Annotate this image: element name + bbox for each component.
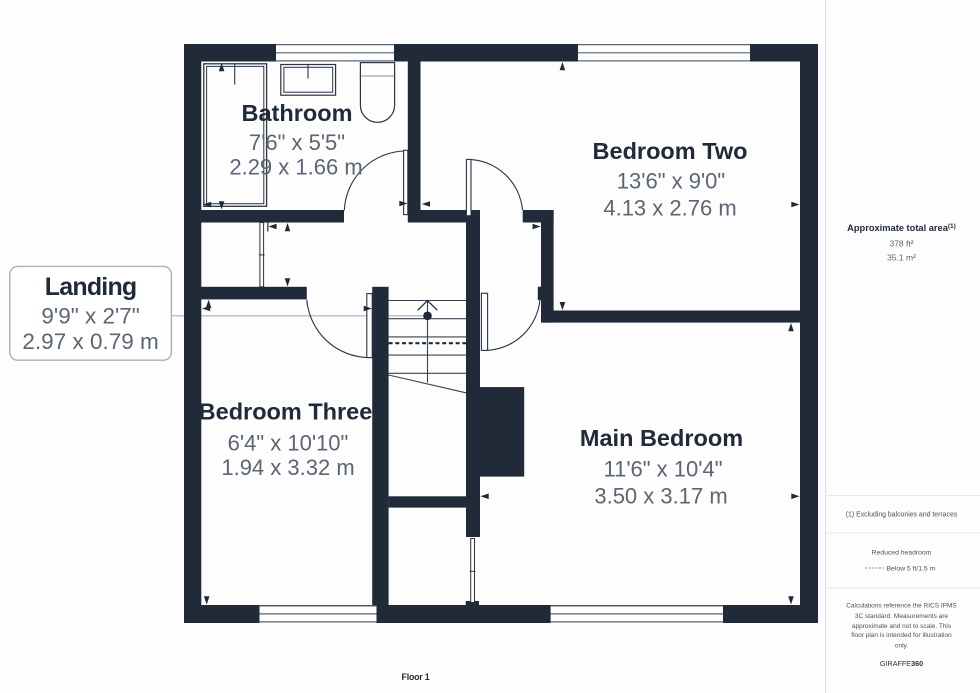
svg-text:Bathroom: Bathroom — [242, 100, 353, 126]
svg-text:Below 5 ft/1.5 m: Below 5 ft/1.5 m — [887, 565, 936, 572]
svg-text:Landing: Landing — [45, 273, 137, 301]
svg-text:13'6" x 9'0": 13'6" x 9'0" — [617, 169, 725, 194]
svg-text:GIRAFFE360: GIRAFFE360 — [880, 659, 923, 668]
svg-text:6'4" x 10'10": 6'4" x 10'10" — [228, 431, 349, 456]
svg-text:Bedroom Three: Bedroom Three — [199, 399, 373, 425]
svg-text:only.: only. — [895, 642, 908, 649]
svg-text:35.1 m²: 35.1 m² — [887, 253, 916, 263]
svg-text:9'9" x 2'7": 9'9" x 2'7" — [41, 304, 139, 329]
svg-text:Reduced headroom: Reduced headroom — [872, 549, 932, 556]
svg-text:1.94 x 3.32 m: 1.94 x 3.32 m — [221, 455, 354, 480]
svg-text:approximate and not to scale.: approximate and not to scale. This — [852, 623, 952, 630]
svg-text:Floor 1: Floor 1 — [402, 672, 430, 682]
svg-text:Approximate total area(1): Approximate total area(1) — [847, 223, 956, 233]
svg-text:3.50 x 3.17 m: 3.50 x 3.17 m — [594, 484, 727, 509]
svg-text:floor plan is intended for ill: floor plan is intended for illustration — [851, 632, 952, 639]
svg-text:4.13 x 2.76 m: 4.13 x 2.76 m — [603, 196, 736, 221]
svg-text:(1) Excluding balconies and te: (1) Excluding balconies and terraces — [846, 512, 958, 519]
svg-text:378 ft²: 378 ft² — [889, 239, 913, 249]
svg-text:Main Bedroom: Main Bedroom — [580, 425, 743, 451]
svg-text:Calculations reference the RIC: Calculations reference the RICS IPMS — [846, 603, 957, 610]
svg-text:Bedroom Two: Bedroom Two — [593, 138, 748, 164]
svg-text:2.29 x 1.66 m: 2.29 x 1.66 m — [229, 155, 362, 180]
svg-text:7'6" x 5'5": 7'6" x 5'5" — [249, 130, 345, 155]
svg-text:2.97 x 0.79 m: 2.97 x 0.79 m — [22, 329, 158, 354]
svg-text:11'6" x 10'4": 11'6" x 10'4" — [603, 457, 722, 482]
svg-text:3C standard. Measurements are: 3C standard. Measurements are — [855, 613, 949, 620]
